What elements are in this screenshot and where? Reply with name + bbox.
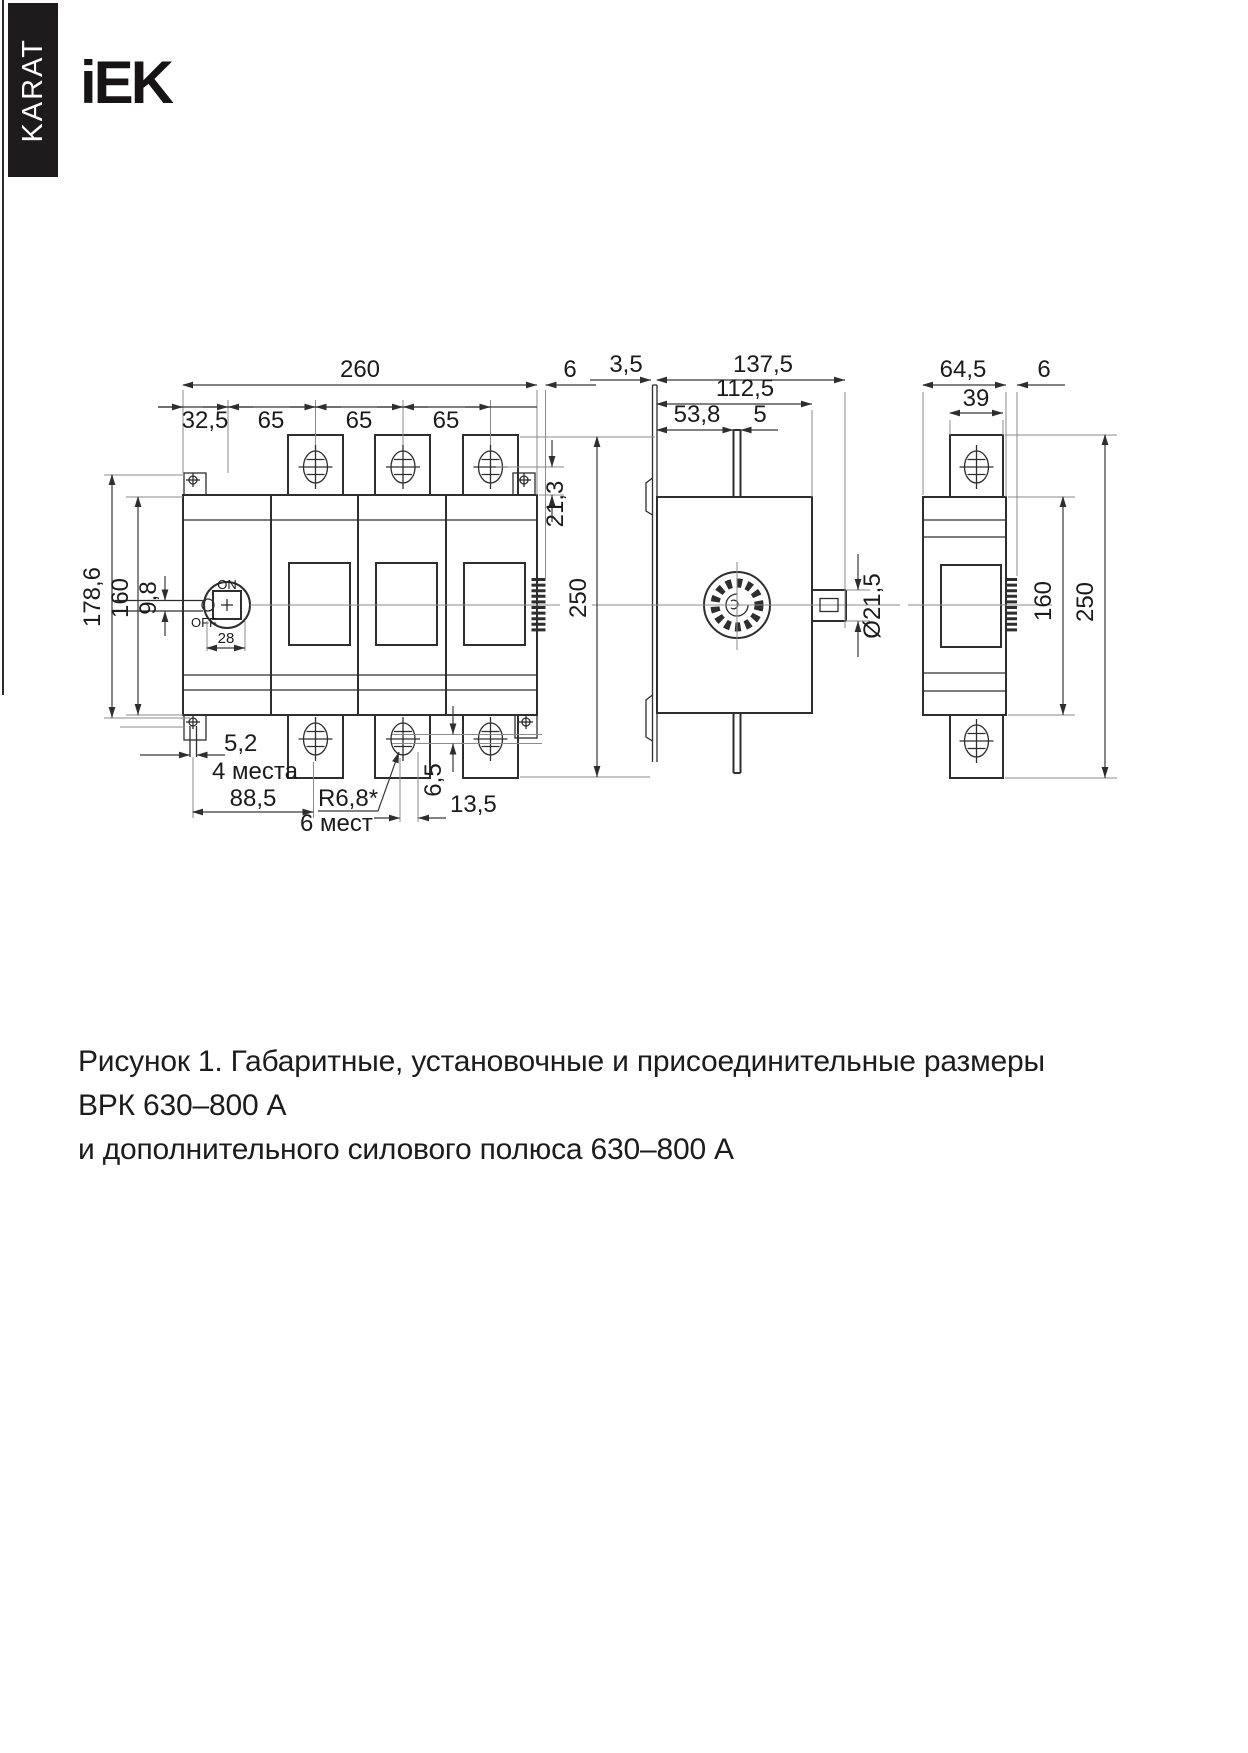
handle-off-label: OFF (191, 615, 217, 630)
dim-pole-160: 160 (1030, 581, 1057, 621)
dim-front-32-5: 32,5 (182, 407, 229, 434)
dim-front-9-8: 9,8 (135, 581, 162, 614)
dim-front-260: 260 (340, 356, 380, 383)
front-view: ON OFF 260 3 (79, 356, 596, 837)
dim-side-53-8: 53,8 (674, 401, 721, 428)
handle-on-label: ON (217, 577, 237, 592)
mount-bracket-bottom-left (184, 715, 206, 757)
dim-front-65c: 65 (433, 407, 460, 434)
side-view: 3,5 137,5 112,5 53,8 5 250 Ø21,5 (520, 351, 900, 777)
mount-bracket-top-right (513, 473, 535, 495)
dim-side-3-5: 3,5 (609, 351, 642, 378)
dim-side-112-5: 112,5 (716, 375, 774, 402)
dim-front-13-5: 13,5 (450, 791, 497, 818)
dim-side-5: 5 (753, 401, 766, 428)
mount-bracket-top-left (184, 473, 206, 495)
figure-caption-line1: Рисунок 1. Габаритные, установочные и пр… (78, 1040, 1058, 1128)
pole-view: 64,5 6 39 160 250 (908, 356, 1117, 778)
dim-front-6-5: 6,5 (420, 763, 447, 796)
handle-gear (704, 562, 770, 650)
dim-side-137-5: 137,5 (733, 351, 793, 378)
dim-front-5-2: 5,2 (224, 730, 257, 757)
figure-caption: Рисунок 1. Габаритные, установочные и пр… (78, 1040, 1058, 1172)
dim-front-6-places: 6 мест (300, 810, 373, 837)
dim-front-21-3: 21,3 (542, 481, 569, 528)
dim-front-65b: 65 (346, 407, 373, 434)
dim-front-6: 6 (563, 356, 576, 383)
dim-side-250: 250 (565, 578, 592, 618)
dim-front-28: 28 (218, 630, 235, 647)
figure-caption-line2: и дополнительного силового полюса 630–80… (78, 1128, 1058, 1172)
dim-front-4-places: 4 места (212, 758, 299, 785)
dimension-drawing: ON OFF 260 3 (0, 0, 1248, 900)
dim-front-r6-8: R6,8* (318, 785, 378, 812)
catalog-page: KARAT iEK (0, 0, 1248, 1753)
dim-side-shaft-dia: Ø21,5 (859, 573, 886, 638)
dim-front-88-5: 88,5 (230, 785, 277, 812)
dim-pole-250: 250 (1072, 582, 1099, 622)
dim-front-178-6: 178,6 (79, 567, 106, 627)
dim-front-160: 160 (107, 578, 134, 618)
dim-pole-6: 6 (1037, 356, 1050, 383)
dim-pole-39: 39 (963, 385, 990, 412)
dim-pole-64-5: 64,5 (940, 356, 987, 383)
dim-front-65a: 65 (258, 407, 285, 434)
